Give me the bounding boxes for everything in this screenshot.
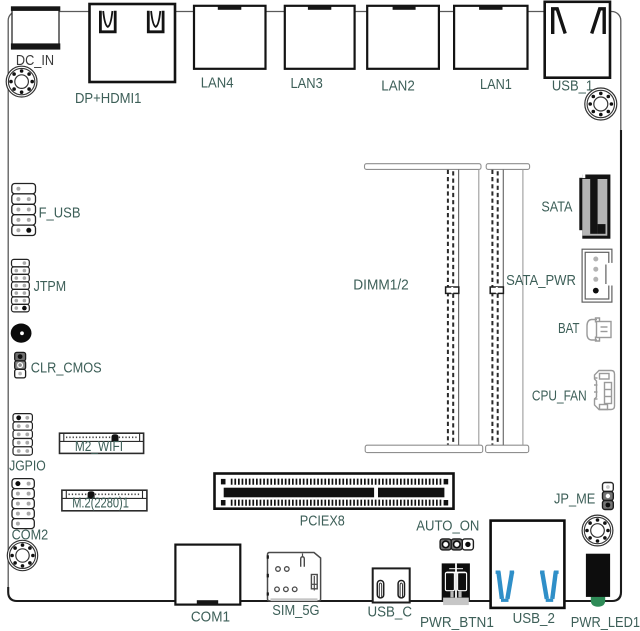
svg-text:AUTO_ON: AUTO_ON: [416, 518, 479, 535]
svg-text:JGPIO: JGPIO: [9, 458, 46, 475]
svg-text:USB_2: USB_2: [513, 610, 555, 627]
svg-text:JTPM: JTPM: [34, 278, 67, 295]
svg-text:PCIEX8: PCIEX8: [300, 513, 345, 530]
svg-text:LAN2: LAN2: [381, 78, 415, 95]
svg-text:SATA: SATA: [541, 199, 572, 216]
svg-text:DIMM1/2: DIMM1/2: [353, 277, 409, 294]
svg-text:COM1: COM1: [191, 609, 230, 626]
svg-text:LAN1: LAN1: [480, 76, 512, 93]
svg-text:USB_C: USB_C: [368, 604, 413, 621]
svg-text:BAT: BAT: [558, 320, 580, 337]
svg-text:LAN4: LAN4: [201, 75, 234, 92]
svg-text:CPU_FAN: CPU_FAN: [532, 388, 587, 405]
svg-text:JP_ME: JP_ME: [554, 491, 595, 508]
svg-text:M.2(2280)1: M.2(2280)1: [72, 495, 129, 512]
svg-text:COM2: COM2: [12, 527, 49, 544]
svg-text:PWR_LED1: PWR_LED1: [571, 614, 640, 631]
svg-text:SIM_5G: SIM_5G: [272, 602, 319, 619]
svg-text:DP+HDMI1: DP+HDMI1: [75, 90, 141, 107]
svg-text:USB_1: USB_1: [552, 78, 593, 95]
svg-text:SATA_PWR: SATA_PWR: [506, 272, 576, 289]
svg-text:F_USB: F_USB: [39, 205, 81, 222]
svg-text:M2_WIFI: M2_WIFI: [75, 438, 123, 455]
svg-text:LAN3: LAN3: [291, 75, 323, 92]
svg-text:DC_IN: DC_IN: [16, 52, 54, 69]
svg-text:CLR_CMOS: CLR_CMOS: [31, 360, 102, 377]
svg-text:PWR_BTN1: PWR_BTN1: [420, 614, 494, 631]
